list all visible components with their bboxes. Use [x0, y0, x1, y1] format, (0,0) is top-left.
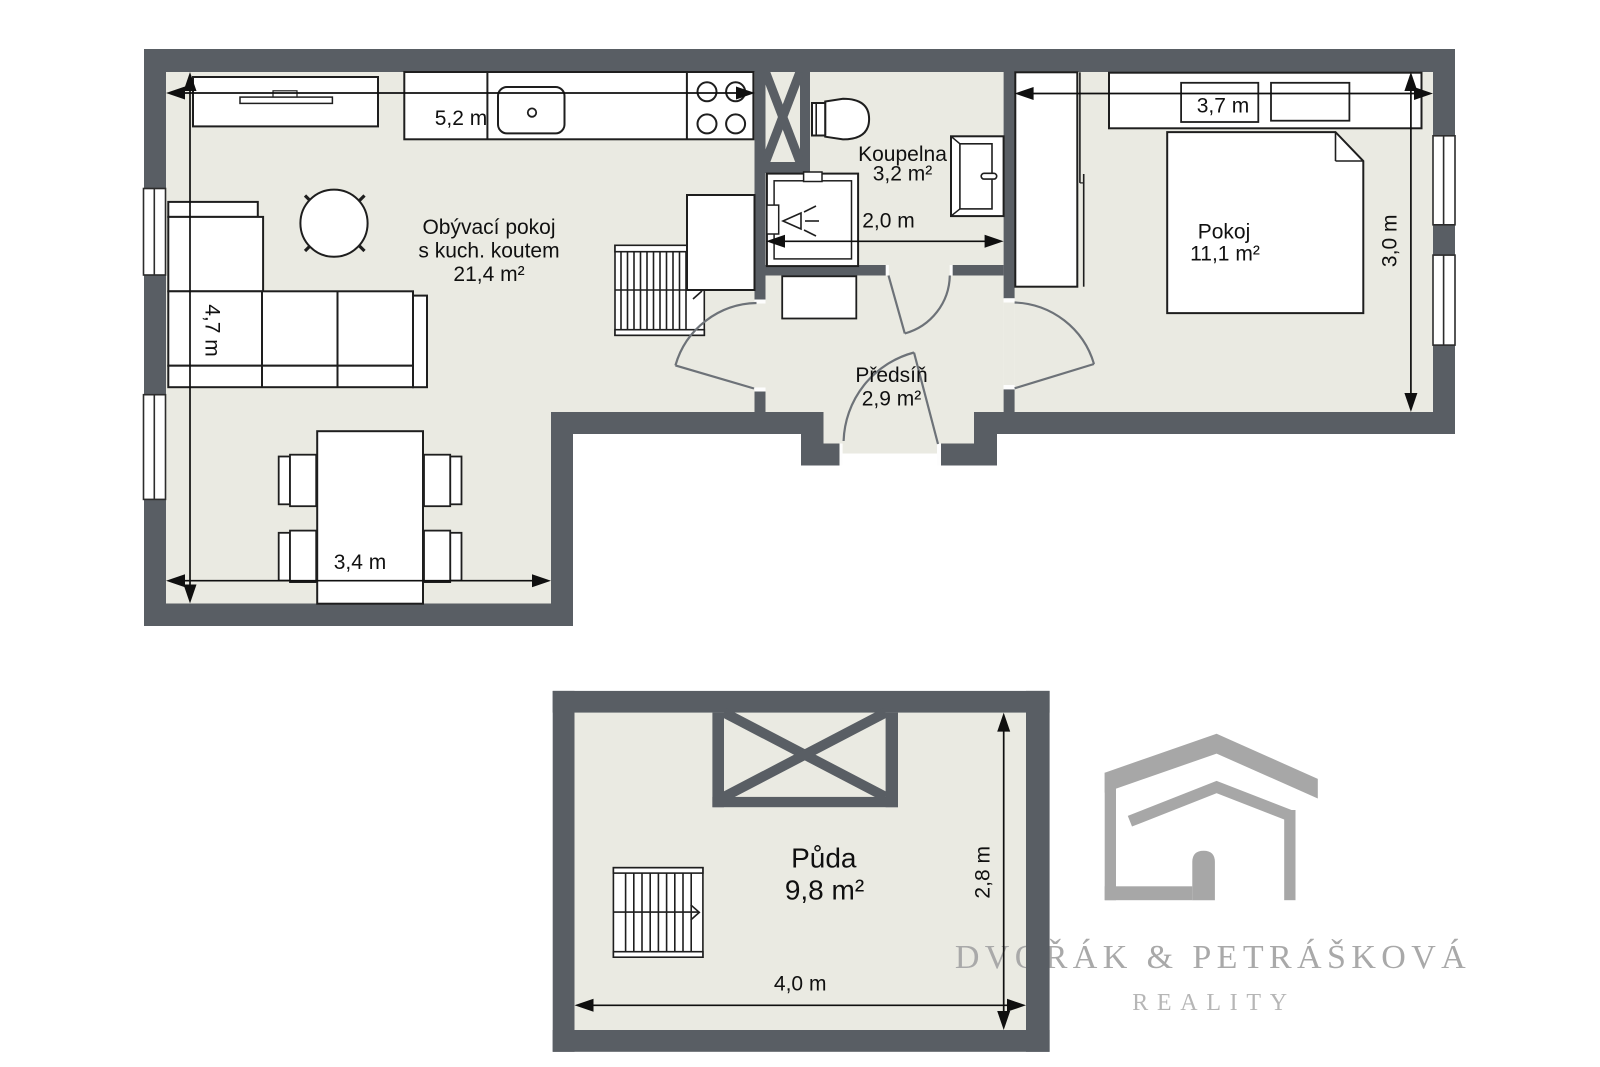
- svg-text:4,7 m: 4,7 m: [201, 304, 224, 357]
- svg-text:3,7 m: 3,7 m: [1197, 95, 1250, 118]
- svg-text:2,9 m²: 2,9 m²: [862, 388, 922, 411]
- svg-text:Pokoj: Pokoj: [1198, 221, 1251, 244]
- svg-text:Obývací pokoj: Obývací pokoj: [422, 216, 555, 239]
- svg-text:2,0 m: 2,0 m: [862, 210, 915, 233]
- svg-text:3,4 m: 3,4 m: [334, 551, 387, 574]
- svg-text:11,1 m²: 11,1 m²: [1190, 243, 1260, 266]
- svg-text:3,2 m²: 3,2 m²: [873, 163, 933, 186]
- svg-text:21,4 m²: 21,4 m²: [453, 263, 524, 286]
- svg-text:s kuch. koutem: s kuch. koutem: [418, 240, 559, 263]
- svg-text:4,0 m: 4,0 m: [774, 973, 827, 996]
- svg-text:2,8 m: 2,8 m: [972, 846, 995, 899]
- svg-text:Předsíň: Předsíň: [855, 364, 927, 387]
- svg-text:Půda: Půda: [791, 843, 857, 874]
- svg-text:3,0 m: 3,0 m: [1379, 215, 1402, 268]
- svg-text:REALITY: REALITY: [1132, 990, 1296, 1016]
- svg-text:9,8 m²: 9,8 m²: [785, 875, 864, 906]
- svg-text:5,2 m: 5,2 m: [435, 107, 488, 130]
